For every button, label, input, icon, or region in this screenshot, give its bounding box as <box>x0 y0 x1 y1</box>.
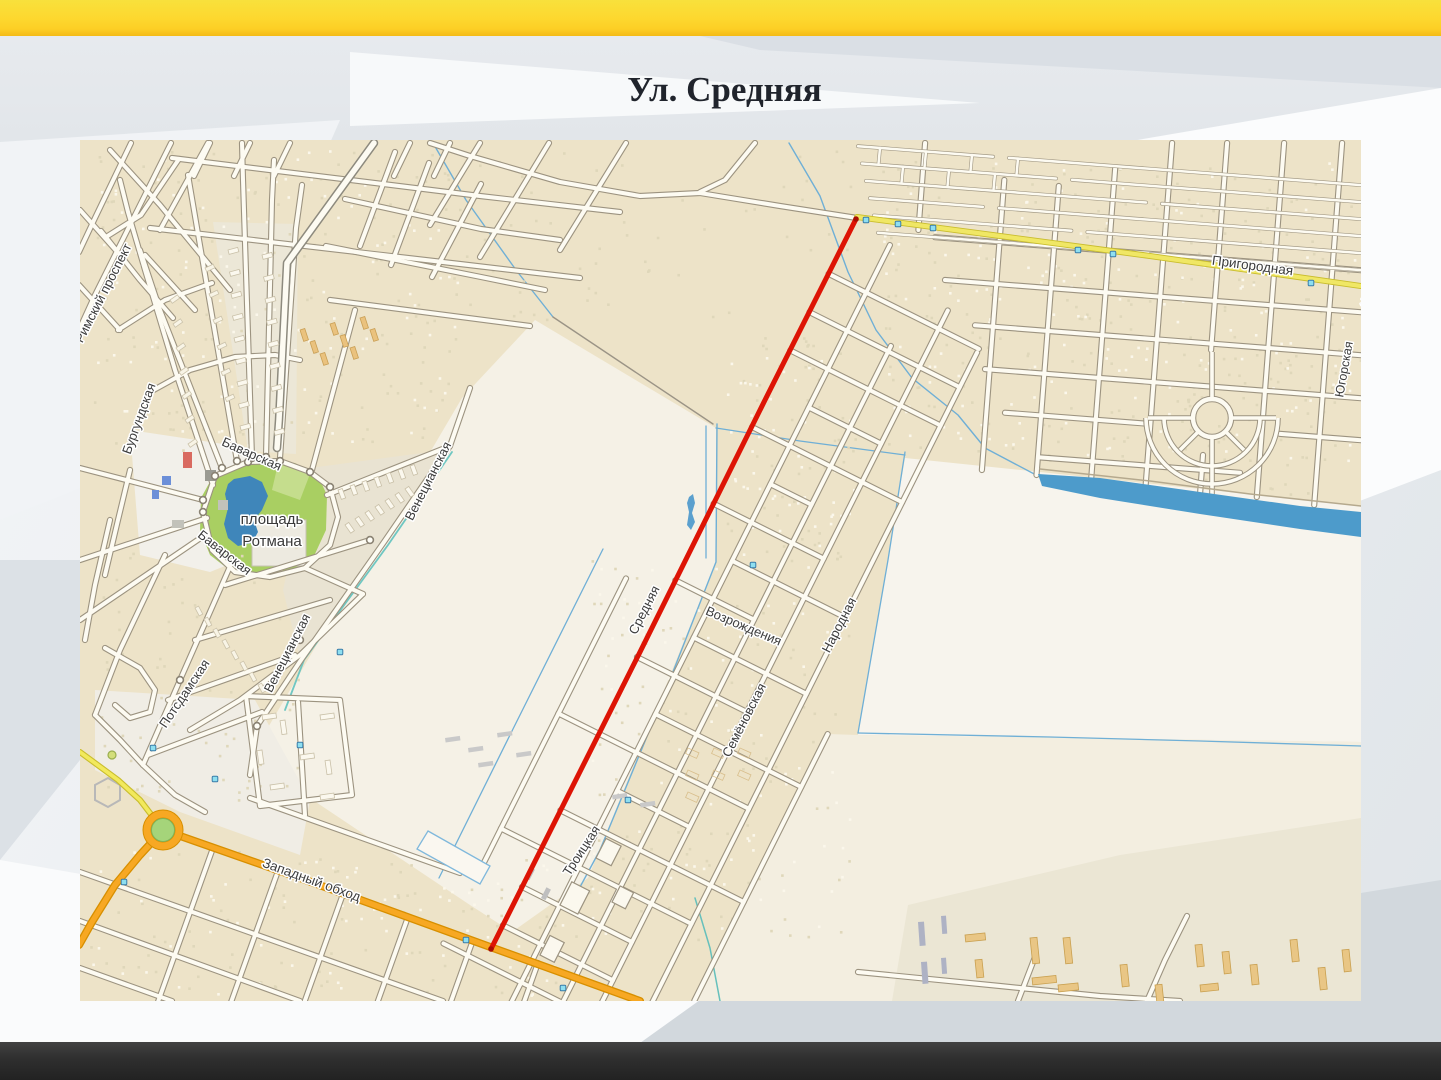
svg-text:Ротмана: Ротмана <box>242 533 302 550</box>
svg-text:площадь: площадь <box>241 511 304 528</box>
